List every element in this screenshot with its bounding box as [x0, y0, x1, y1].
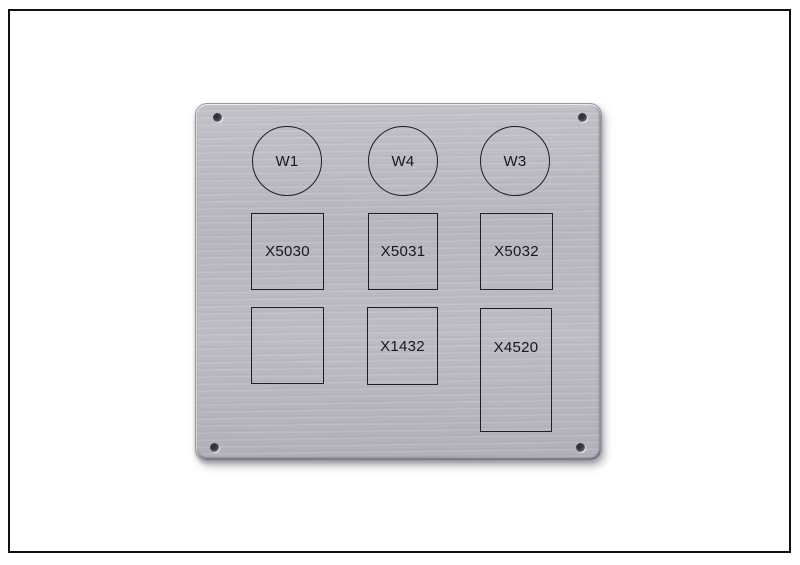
rect-marking-label: X5031 [381, 243, 426, 260]
panel-rect-marking-6-tall: X4520 [480, 308, 552, 432]
panel-rect-marking-5: X1432 [367, 307, 438, 385]
rect-marking-label: X4520 [494, 339, 539, 356]
screw-hole-icon [213, 113, 222, 122]
circle-marking-label: W1 [275, 153, 298, 170]
rect-marking-label: X5030 [265, 243, 310, 260]
aluminium-panel: W1 W4 W3 X5030 X5031 X5032 X1432 X4520 [195, 103, 602, 461]
photo-canvas: W1 W4 W3 X5030 X5031 X5032 X1432 X4520 [0, 0, 800, 565]
screw-hole-icon [578, 113, 587, 122]
circle-marking-label: W4 [391, 153, 414, 170]
panel-rect-marking-4-unlabeled [251, 307, 324, 384]
circle-marking-label: W3 [503, 153, 526, 170]
rect-marking-label: X1432 [380, 338, 425, 355]
panel-circle-marking-3: W3 [480, 126, 550, 196]
panel-rect-marking-3: X5032 [480, 213, 553, 290]
panel-circle-marking-2: W4 [368, 126, 438, 196]
panel-rect-marking-2: X5031 [368, 213, 438, 290]
rect-marking-label: X5032 [494, 243, 539, 260]
panel-rect-marking-1: X5030 [251, 213, 324, 290]
screw-hole-icon [210, 443, 219, 452]
screw-hole-icon [576, 443, 585, 452]
panel-circle-marking-1: W1 [252, 126, 322, 196]
